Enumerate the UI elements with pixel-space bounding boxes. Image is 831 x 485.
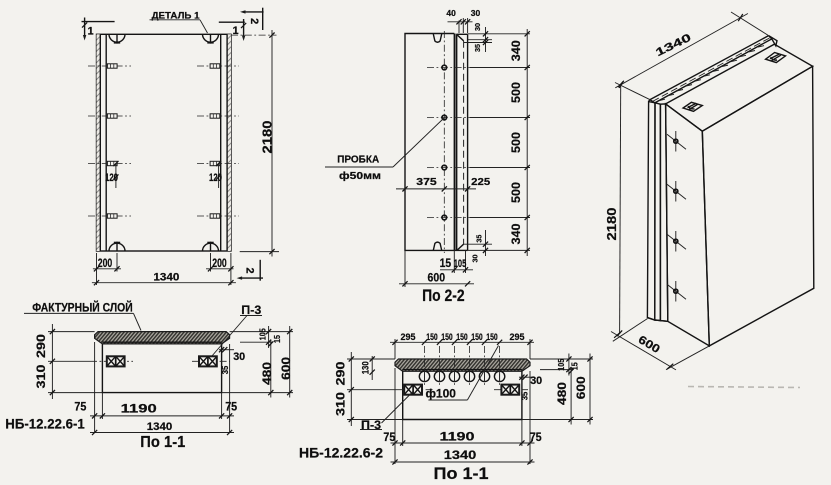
svg-text:30: 30 (471, 8, 481, 18)
svg-text:500: 500 (509, 182, 523, 203)
svg-text:200: 200 (212, 256, 227, 270)
svg-text:105: 105 (257, 328, 267, 340)
svg-text:40: 40 (446, 8, 456, 18)
svg-text:По 1-1: По 1-1 (434, 464, 489, 483)
svg-text:105: 105 (556, 359, 566, 371)
svg-text:75: 75 (74, 400, 86, 414)
svg-text:600: 600 (576, 376, 588, 399)
svg-text:30: 30 (530, 375, 542, 387)
svg-text:1190: 1190 (121, 404, 157, 416)
svg-text:290: 290 (336, 362, 348, 386)
svg-text:П-3: П-3 (241, 303, 261, 317)
svg-text:480: 480 (557, 382, 569, 405)
svg-text:1340: 1340 (147, 421, 173, 433)
svg-text:310: 310 (336, 392, 348, 416)
svg-text:НБ-12.22.6-1: НБ-12.22.6-1 (5, 416, 85, 431)
svg-text:ДЕТАЛЬ 1: ДЕТАЛЬ 1 (152, 11, 200, 21)
svg-text:30: 30 (473, 23, 482, 31)
svg-text:290: 290 (36, 334, 48, 358)
svg-text:295: 295 (510, 332, 526, 343)
svg-text:600: 600 (281, 357, 293, 380)
svg-text:1190: 1190 (440, 432, 475, 444)
svg-text:130: 130 (361, 361, 371, 374)
svg-text:105: 105 (454, 258, 467, 270)
svg-text:375: 375 (416, 177, 437, 188)
svg-text:150: 150 (441, 332, 453, 342)
svg-text:295: 295 (401, 332, 417, 343)
svg-text:200: 200 (98, 256, 113, 270)
svg-text:ф100: ф100 (425, 387, 456, 401)
svg-text:340: 340 (509, 40, 523, 61)
svg-text:30: 30 (470, 255, 479, 263)
svg-text:1340: 1340 (153, 272, 179, 284)
svg-text:2: 2 (244, 267, 256, 273)
svg-text:75: 75 (225, 400, 237, 414)
svg-text:30: 30 (233, 351, 245, 363)
svg-text:По 1-1: По 1-1 (140, 434, 185, 451)
svg-text:По 2-2: По 2-2 (422, 287, 465, 305)
svg-text:120: 120 (209, 172, 222, 184)
svg-text:2180: 2180 (260, 121, 275, 154)
svg-text:600: 600 (428, 270, 446, 284)
svg-text:1: 1 (87, 26, 93, 38)
svg-text:310: 310 (36, 365, 48, 389)
svg-text:225: 225 (471, 177, 490, 188)
svg-text:150: 150 (426, 332, 438, 342)
svg-text:150: 150 (471, 332, 483, 342)
svg-text:500: 500 (509, 132, 523, 153)
svg-text:35: 35 (473, 44, 482, 52)
svg-text:1340: 1340 (444, 448, 477, 462)
svg-text:75: 75 (530, 430, 542, 444)
svg-text:15: 15 (440, 258, 452, 270)
svg-text:2: 2 (248, 18, 260, 24)
svg-text:ФАКТУРНЫЙ СЛОЙ: ФАКТУРНЫЙ СЛОЙ (32, 300, 133, 315)
svg-text:340: 340 (509, 223, 523, 244)
svg-text:2180: 2180 (604, 208, 619, 241)
svg-text:500: 500 (509, 82, 523, 103)
svg-text:ПРОБКА: ПРОБКА (337, 154, 379, 166)
svg-text:35: 35 (521, 391, 530, 400)
svg-text:120: 120 (105, 172, 118, 184)
svg-text:35: 35 (474, 235, 483, 243)
svg-text:35: 35 (221, 365, 230, 374)
svg-text:480: 480 (262, 362, 274, 385)
svg-text:150: 150 (486, 332, 498, 342)
svg-text:НБ-12.22.6-2: НБ-12.22.6-2 (299, 445, 383, 460)
svg-text:75: 75 (383, 430, 395, 444)
svg-text:150: 150 (456, 332, 468, 342)
svg-text:ф50мм: ф50мм (339, 170, 381, 182)
